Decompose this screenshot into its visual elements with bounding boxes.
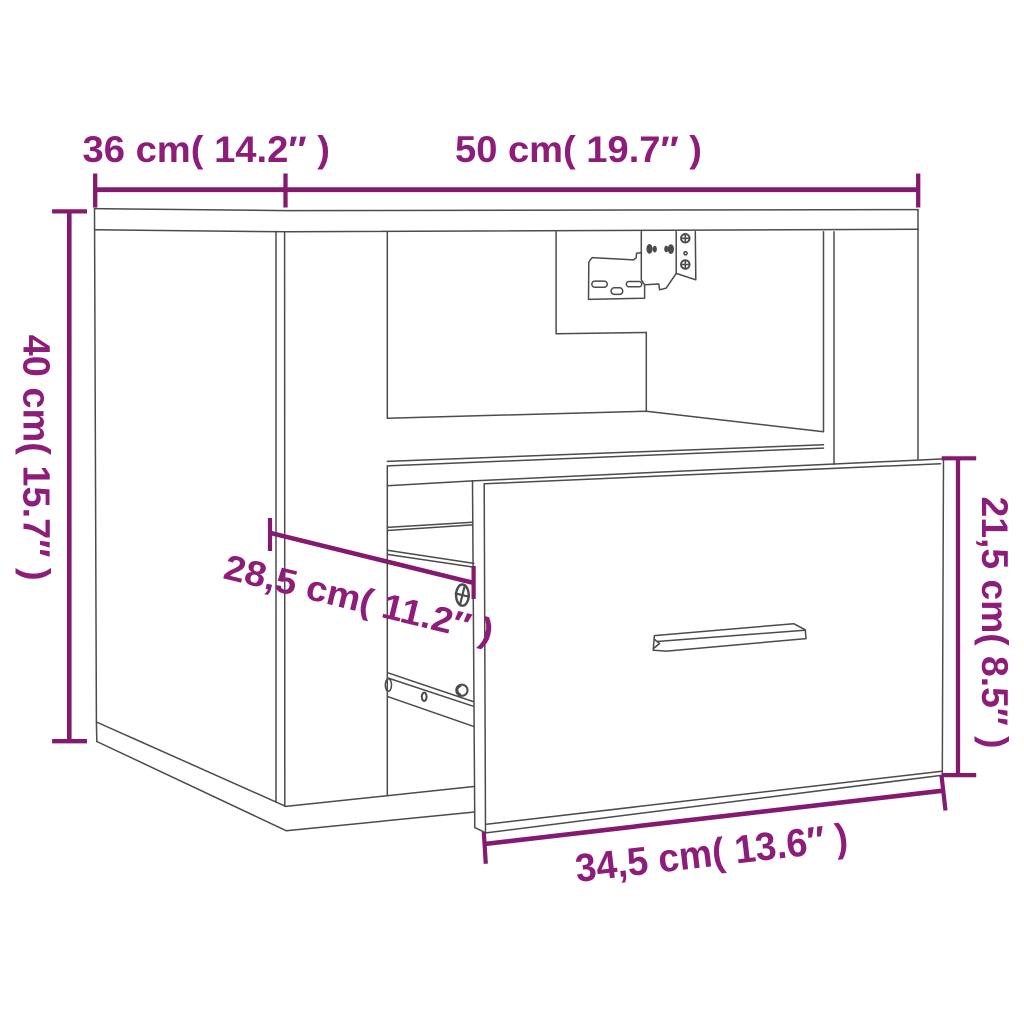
svg-text:21,5 cm( 8.5″ ): 21,5 cm( 8.5″ ) [974, 497, 1016, 749]
svg-text:36 cm( 14.2″ ): 36 cm( 14.2″ ) [83, 129, 331, 170]
svg-text:50 cm( 19.7″ ): 50 cm( 19.7″ ) [455, 129, 702, 170]
svg-text:40 cm( 15.7″ ): 40 cm( 15.7″ ) [15, 335, 57, 581]
